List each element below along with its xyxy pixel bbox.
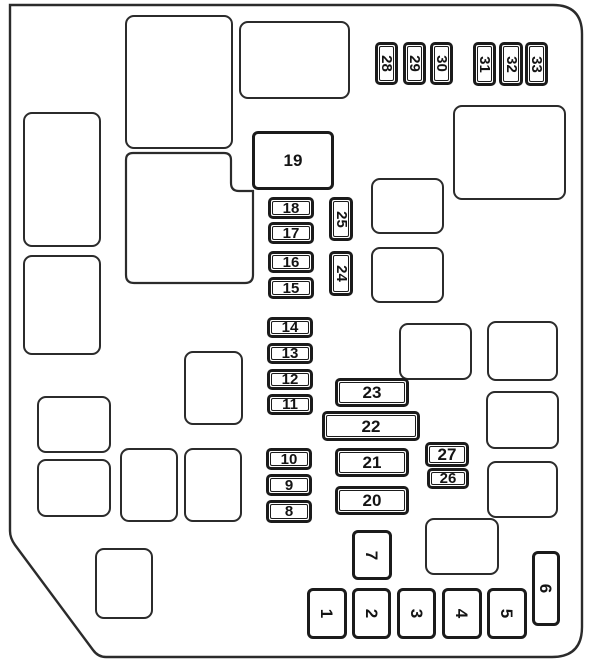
fuse-31: 31	[473, 42, 496, 86]
fuse-9-inner-frame: 9	[270, 478, 308, 492]
fuse-3-number: 3	[408, 609, 425, 618]
fuse-22: 22	[322, 411, 420, 441]
fuse-15-number: 15	[283, 281, 300, 296]
fuse-21-number: 21	[363, 454, 382, 471]
fuse-12-inner-frame: 12	[271, 373, 309, 386]
fuse-6: 6	[532, 551, 560, 626]
fuse-29-inner-frame: 29	[407, 46, 422, 81]
fuse-23-inner-frame: 23	[339, 382, 405, 403]
fuse-23: 23	[335, 378, 409, 407]
fuse-24: 24	[329, 251, 353, 296]
fuse-20-number: 20	[363, 492, 382, 509]
fuse-14: 14	[267, 317, 313, 338]
fuse-32-inner-frame: 32	[503, 46, 519, 82]
fuse-24-inner-frame: 24	[333, 255, 349, 292]
fuse-1-number: 1	[319, 609, 336, 618]
fuse-10: 10	[266, 448, 312, 470]
fuse-31-inner-frame: 31	[477, 46, 492, 82]
fuse-21-inner-frame: 21	[339, 452, 405, 473]
fuse-18-inner-frame: 18	[272, 201, 310, 215]
fuse-16-inner-frame: 16	[272, 255, 310, 269]
fuse-5-number: 5	[499, 609, 516, 618]
fuse-27: 27	[425, 442, 469, 467]
fuse-22-number: 22	[362, 418, 381, 435]
fuse-30-number: 30	[434, 55, 449, 72]
fuse-1: 1	[307, 588, 347, 639]
fuse-6-number: 6	[538, 584, 555, 593]
fuse-8: 8	[266, 500, 312, 523]
fuse-25-number: 25	[334, 211, 349, 228]
fuse-2: 2	[352, 588, 391, 639]
fuse-15-inner-frame: 15	[272, 281, 310, 295]
fuse-25: 25	[329, 197, 353, 241]
fuse-2-number: 2	[363, 609, 380, 618]
fuse-31-number: 31	[477, 56, 492, 73]
fuse-20: 20	[335, 486, 409, 515]
fuse-22-inner-frame: 22	[326, 415, 416, 437]
fuse-8-number: 8	[285, 504, 293, 519]
fuse-32-number: 32	[504, 56, 519, 73]
fuse-13: 13	[267, 343, 313, 364]
fuse-11-number: 11	[282, 397, 298, 412]
fuse-33-number: 33	[529, 56, 544, 73]
fuse-16: 16	[268, 251, 314, 273]
fuse-7-number: 7	[364, 550, 381, 559]
fuse-24-number: 24	[334, 265, 349, 282]
fuse-4: 4	[442, 588, 482, 639]
fuse-19: 19	[252, 131, 334, 190]
fuse-18: 18	[268, 197, 314, 219]
fuse-10-number: 10	[281, 452, 298, 467]
fuse-8-inner-frame: 8	[270, 504, 308, 519]
fuse-9-number: 9	[285, 478, 293, 493]
fuse-25-inner-frame: 25	[333, 201, 349, 237]
fuse-14-number: 14	[282, 320, 299, 335]
fuse-33-inner-frame: 33	[529, 46, 544, 82]
fuse-14-inner-frame: 14	[271, 321, 309, 334]
numbered-fuses-layer: 1234567891011121314151617181920212223242…	[0, 0, 601, 668]
fuse-18-number: 18	[283, 201, 300, 216]
fuse-5: 5	[487, 588, 527, 639]
fuse-17: 17	[268, 222, 314, 244]
fuse-4-number: 4	[454, 609, 471, 618]
fuse-13-number: 13	[282, 346, 299, 361]
fuse-16-number: 16	[283, 255, 300, 270]
fuse-17-number: 17	[283, 226, 300, 241]
fuse-19-number: 19	[284, 152, 303, 169]
fuse-29: 29	[403, 42, 426, 85]
fuse-box-diagram: 1234567891011121314151617181920212223242…	[0, 0, 601, 668]
fuse-29-number: 29	[407, 55, 422, 72]
fuse-13-inner-frame: 13	[271, 347, 309, 360]
fuse-17-inner-frame: 17	[272, 226, 310, 240]
fuse-11-inner-frame: 11	[271, 398, 309, 411]
fuse-27-inner-frame: 27	[429, 446, 465, 463]
fuse-28-number: 28	[379, 55, 394, 72]
fuse-10-inner-frame: 10	[270, 452, 308, 466]
fuse-26: 26	[427, 468, 469, 489]
fuse-23-number: 23	[363, 384, 382, 401]
fuse-21: 21	[335, 448, 409, 477]
fuse-7: 7	[352, 530, 392, 580]
fuse-28: 28	[375, 42, 398, 85]
fuse-32: 32	[499, 42, 523, 86]
fuse-15: 15	[268, 277, 314, 299]
fuse-30-inner-frame: 30	[434, 46, 449, 81]
fuse-20-inner-frame: 20	[339, 490, 405, 511]
fuse-12-number: 12	[282, 372, 299, 387]
fuse-30: 30	[430, 42, 453, 85]
fuse-26-inner-frame: 26	[431, 472, 465, 485]
fuse-12: 12	[267, 369, 313, 390]
fuse-11: 11	[267, 394, 313, 415]
fuse-27-number: 27	[438, 446, 457, 463]
fuse-9: 9	[266, 474, 312, 496]
fuse-3: 3	[397, 588, 436, 639]
fuse-28-inner-frame: 28	[379, 46, 394, 81]
fuse-26-number: 26	[440, 471, 457, 486]
fuse-33: 33	[525, 42, 548, 86]
